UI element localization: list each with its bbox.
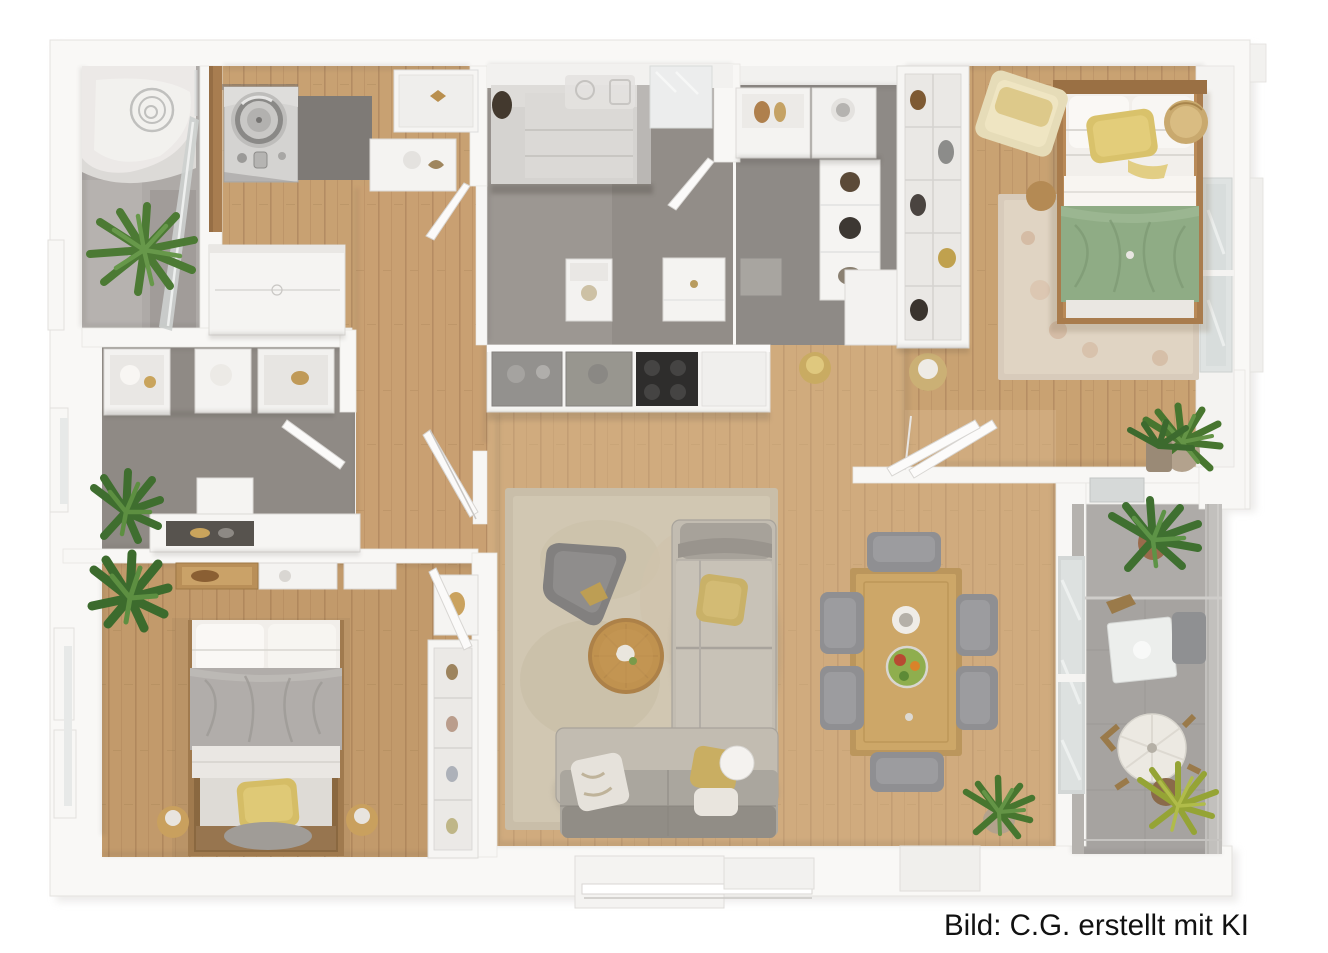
svg-text:Bild: C.G. erstellt mit KI: Bild: C.G. erstellt mit KI xyxy=(944,909,1249,942)
